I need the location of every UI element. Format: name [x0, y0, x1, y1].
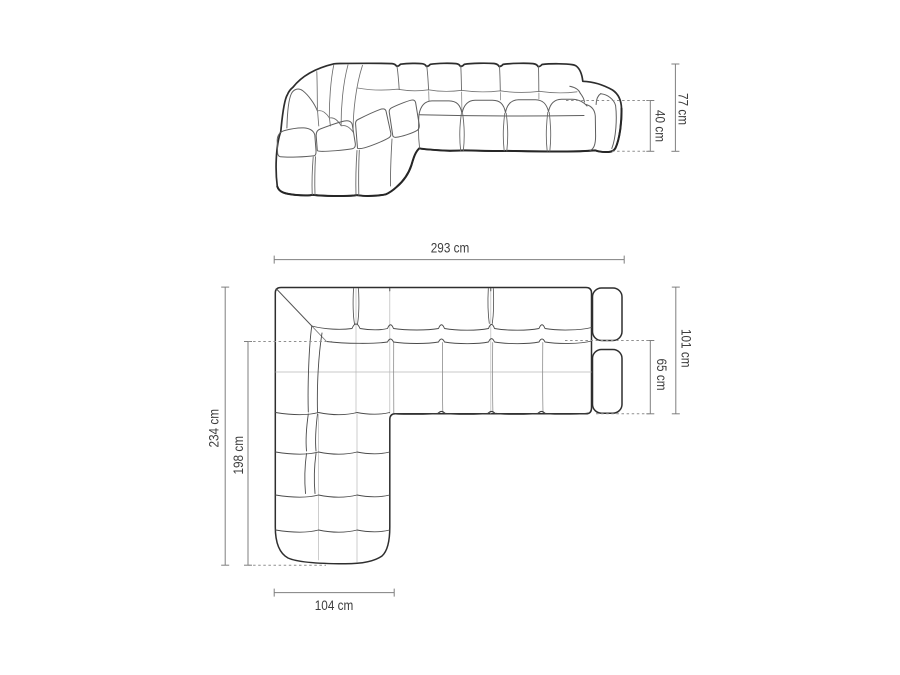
- svg-text:293 cm: 293 cm: [431, 240, 470, 256]
- svg-text:77 cm: 77 cm: [675, 93, 691, 125]
- svg-text:234 cm: 234 cm: [206, 409, 222, 448]
- svg-text:101 cm: 101 cm: [678, 329, 694, 368]
- svg-text:40 cm: 40 cm: [652, 110, 668, 142]
- svg-text:198 cm: 198 cm: [230, 436, 246, 475]
- svg-text:65 cm: 65 cm: [654, 359, 670, 391]
- svg-text:104 cm: 104 cm: [315, 597, 354, 613]
